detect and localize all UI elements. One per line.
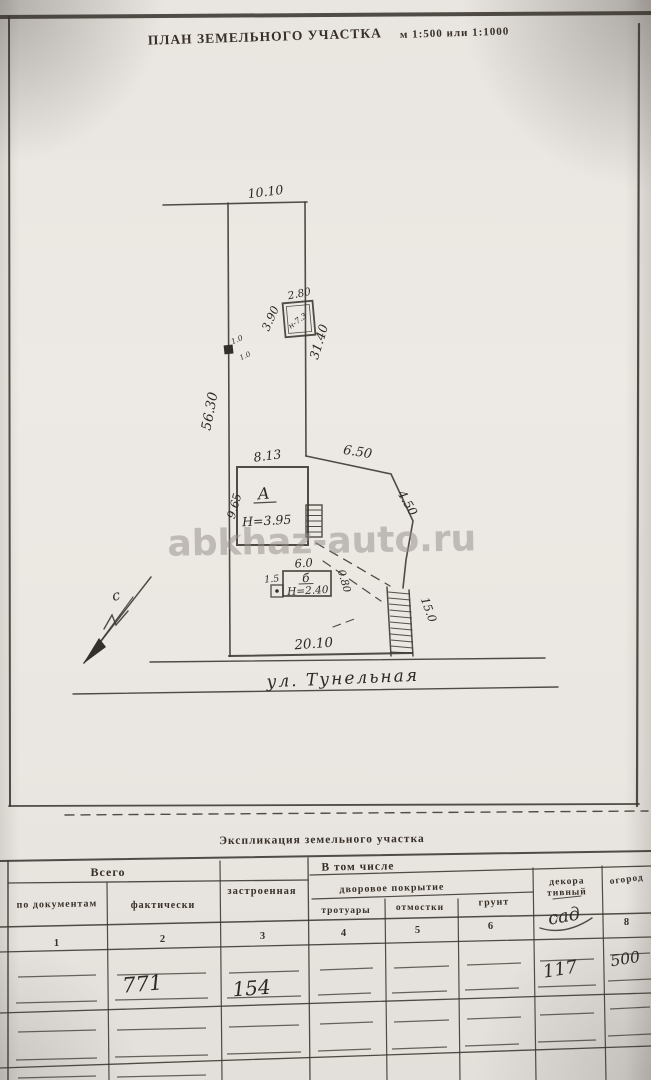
col-decor-line2: тивный [547, 886, 587, 898]
perforation-line [65, 811, 648, 815]
shed-dim-d: 3.90 [259, 304, 282, 333]
value-built: 154 [232, 975, 272, 1002]
col-number-3: 3 [260, 931, 266, 942]
col-group-yard: дворовое покрытие [339, 882, 444, 896]
col-group-total: Всего [91, 865, 126, 879]
col-number-4: 4 [341, 928, 347, 939]
shed-dim-w: 2.80 [286, 286, 313, 303]
value-fact: 771 [121, 970, 163, 997]
garage-b-height: Н=2.40 [286, 584, 329, 598]
value-decor: 117 [542, 956, 580, 982]
plan-title: ПЛАН ЗЕМЕЛЬНОГО УЧАСТКА [148, 25, 383, 47]
watermark-text: abkhaz-auto.ru [167, 518, 476, 564]
col-sidewalks: тротуары [321, 906, 370, 916]
garage-annex [271, 585, 283, 597]
dim-east1-label: 6.50 [342, 443, 373, 462]
col-garden: огород [609, 873, 644, 887]
north-label: с [111, 587, 122, 604]
col-number-1: 1 [54, 938, 60, 949]
dim-bottom-label: 20.10 [293, 635, 334, 654]
well-marker [224, 344, 234, 354]
col-number-2: 2 [160, 934, 166, 945]
scanned-plan-document: ПЛАН ЗЕМЕЛЬНОГО УЧАСТКА м 1:500 или 1:10… [0, 0, 651, 1080]
stairs-symbol [387, 587, 413, 656]
value-garden: 500 [609, 948, 641, 970]
street-name: ул. Тунельная [265, 666, 419, 693]
house-a-label: А [256, 484, 270, 504]
plan-scale-note: м 1:500 или 1:1000 [400, 26, 510, 41]
dim-east2-label: 4.50 [394, 487, 420, 518]
garage-side-dim: 0.80 [335, 568, 353, 594]
house-a-dim-w: 8.13 [253, 446, 282, 464]
col-soil: грунт [478, 896, 509, 908]
garage-b-label: б [302, 571, 311, 585]
col-number-5: 5 [415, 925, 421, 936]
plan-drawing: ПЛАН ЗЕМЕЛЬНОГО УЧАСТКА м 1:500 или 1:10… [0, 0, 651, 1080]
col-number-8: 8 [624, 917, 630, 928]
dim-left-label: 56.30 [199, 390, 222, 431]
dim-top-label: 10.10 [247, 182, 284, 201]
table-title: Экспликация земельного участка [219, 833, 425, 847]
well-dim-a: 1.0 [230, 333, 245, 346]
col-group-including: В том числе [321, 860, 394, 873]
stairs-dim: 15.0 [418, 595, 440, 624]
col-number-7: 7 [554, 914, 560, 925]
col-built: застроенная [227, 886, 296, 897]
col-blind-area: отмостки [396, 903, 444, 913]
col-docs: по документам [17, 898, 98, 910]
well-dim-b: 1.0 [238, 350, 252, 362]
dim-right-upper-label: 31.40 [306, 322, 331, 361]
col-number-6: 6 [488, 921, 494, 932]
frame-border [0, 13, 651, 815]
garage-annex-dim: 1.5 [264, 573, 280, 585]
col-decor-line1: декора [549, 876, 584, 887]
col-fact: фактически [131, 900, 196, 911]
